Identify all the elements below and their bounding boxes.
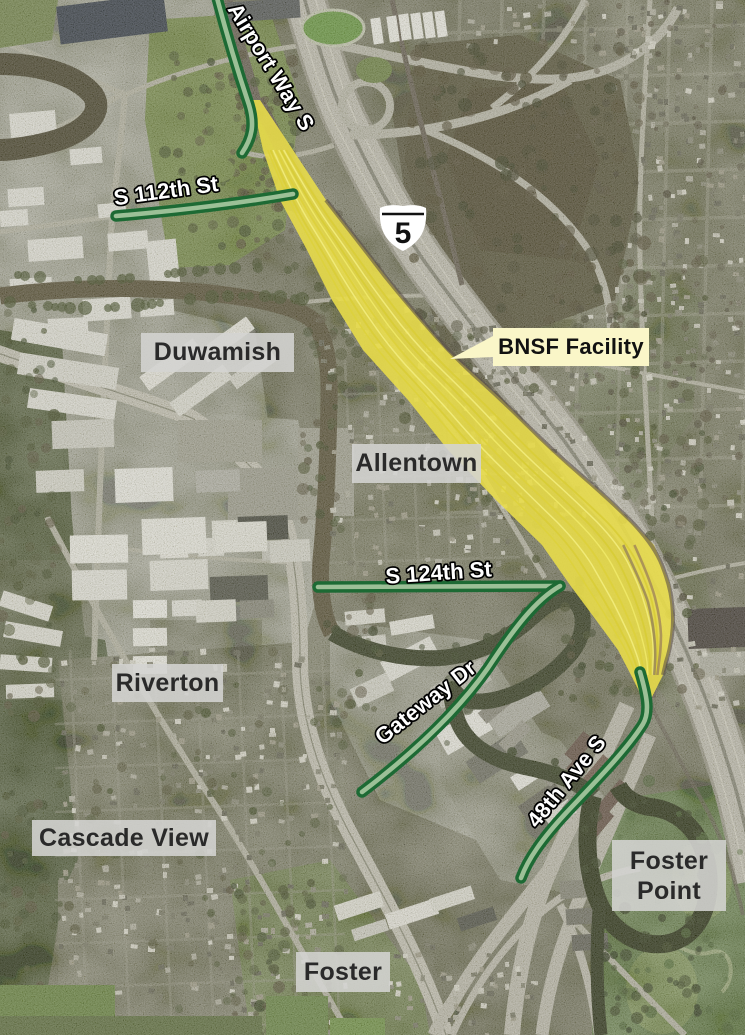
svg-text:5: 5 (395, 217, 412, 250)
